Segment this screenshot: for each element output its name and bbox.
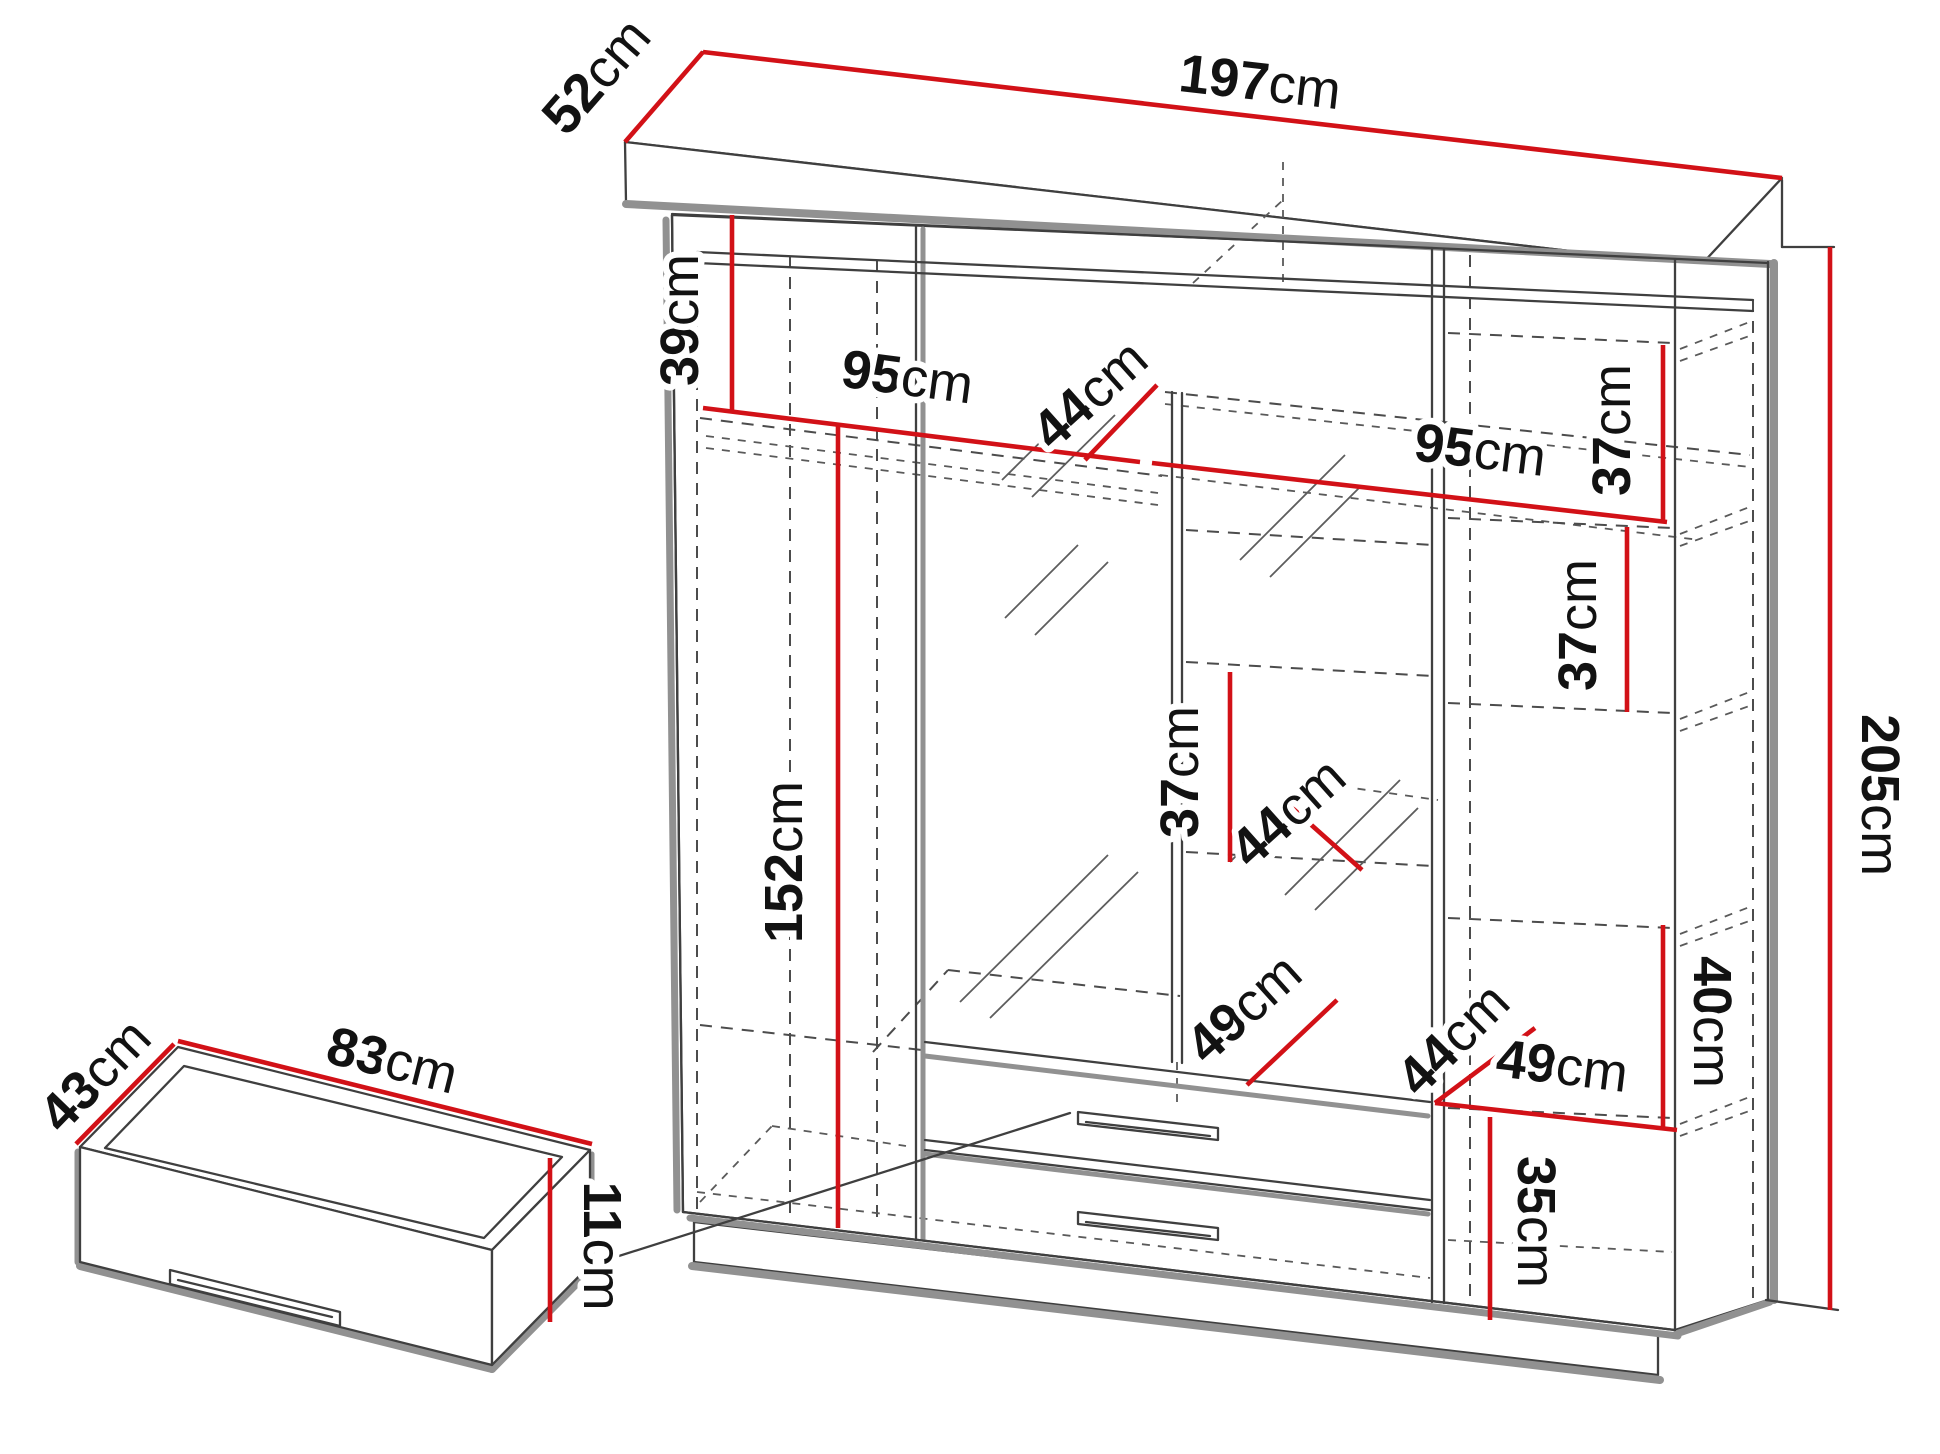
dimension-label-right-shelf-2: 37cm (1548, 559, 1608, 691)
dimension-label-right-shelf-1: 37cm (1582, 364, 1642, 496)
dimension-label-plinth-section: 35cm (1506, 1156, 1566, 1288)
dimension-label-drawer-box-height: 11cm (572, 1181, 632, 1310)
diagram-canvas: 197cm 52cm 39cm 95cm 44cm 95cm 37cm 37cm… (0, 0, 1940, 1454)
dimension-label-upper-section: 39cm (650, 254, 710, 386)
dimension-label-hanging-section: 152cm (754, 781, 814, 943)
wardrobe-dimension-diagram: 197cm 52cm 39cm 95cm 44cm 95cm 37cm 37cm… (0, 0, 1940, 1454)
dimension-label-height: 205cm (1850, 714, 1910, 876)
dimension-label-middle-shelf: 37cm (1150, 706, 1210, 838)
dimension-label-right-lower-section: 40cm (1682, 956, 1742, 1088)
